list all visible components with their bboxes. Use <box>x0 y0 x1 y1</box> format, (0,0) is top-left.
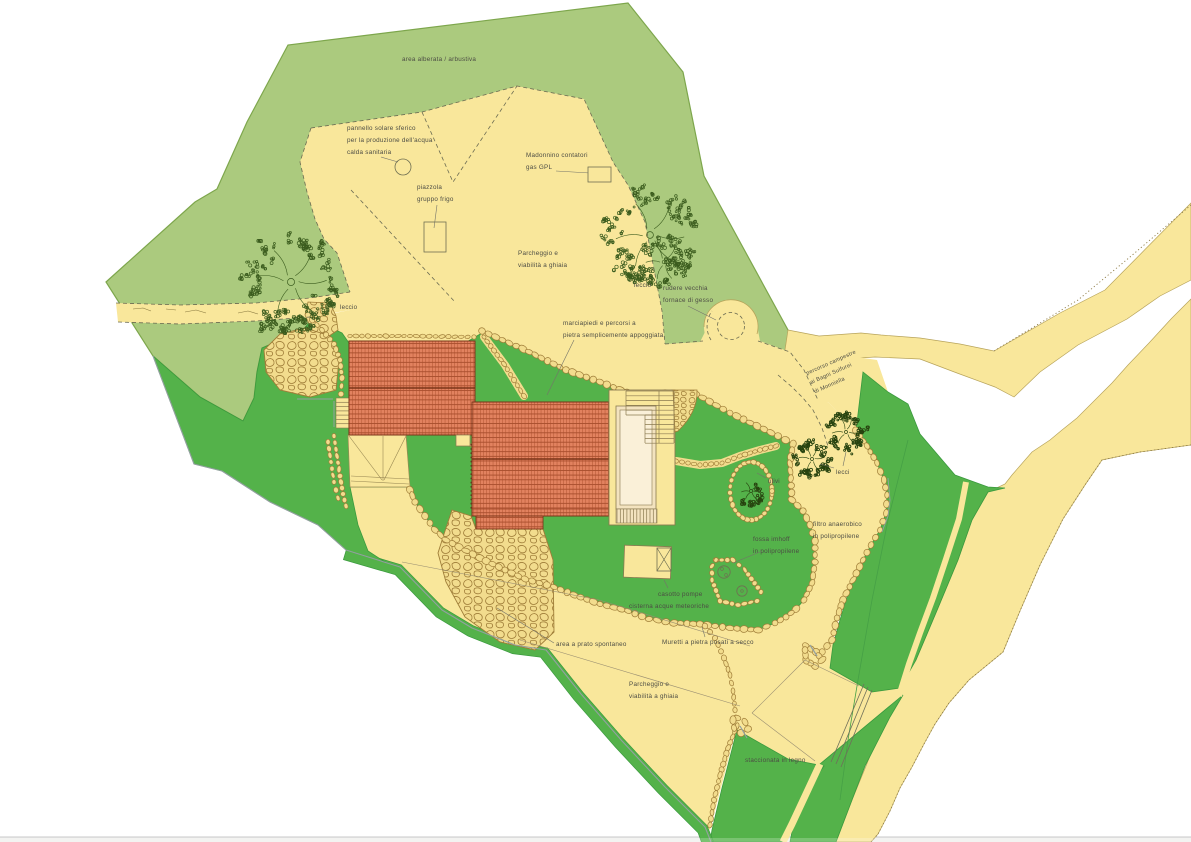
svg-text:gruppo frigo: gruppo frigo <box>417 196 454 203</box>
svg-text:Parcheggio e: Parcheggio e <box>518 250 558 257</box>
svg-text:viabilità a ghiaia: viabilità a ghiaia <box>518 262 568 269</box>
svg-text:staccionata in legno: staccionata in legno <box>745 757 806 764</box>
svg-text:calda sanitaria: calda sanitaria <box>347 149 392 156</box>
svg-text:fornace di gesso: fornace di gesso <box>663 297 713 304</box>
svg-text:pannello solare sferico: pannello solare sferico <box>347 125 416 132</box>
svg-text:leccio: leccio <box>340 304 358 311</box>
svg-text:lecci: lecci <box>836 469 850 476</box>
svg-text:cisterna acque meteoriche: cisterna acque meteoriche <box>629 603 709 610</box>
svg-text:ulivi: ulivi <box>768 478 780 485</box>
svg-text:pietra semplicemente appoggiat: pietra semplicemente appoggiata <box>563 332 664 339</box>
svg-text:piazzola: piazzola <box>417 184 442 191</box>
svg-text:area alberata / arbustiva: area alberata / arbustiva <box>402 56 476 63</box>
svg-text:gas GPL: gas GPL <box>526 164 552 171</box>
svg-text:per la produzione dell'acqua: per la produzione dell'acqua <box>347 137 433 144</box>
svg-text:viabilità a ghiaia: viabilità a ghiaia <box>629 693 679 700</box>
svg-text:in polipropilene: in polipropilene <box>813 533 860 540</box>
svg-text:fossa imhoff: fossa imhoff <box>753 536 790 543</box>
svg-text:casotto pompe: casotto pompe <box>658 591 703 598</box>
svg-text:area a prato spontaneo: area a prato spontaneo <box>556 641 627 648</box>
svg-text:filtro anaerobico: filtro anaerobico <box>813 521 862 528</box>
svg-text:in polipropilene: in polipropilene <box>753 548 800 555</box>
svg-text:Parcheggio e: Parcheggio e <box>629 681 669 688</box>
svg-text:marciapiedi e percorsi a: marciapiedi e percorsi a <box>563 320 636 327</box>
svg-text:rudere vecchia: rudere vecchia <box>663 285 708 292</box>
svg-text:Muretti a pietra posati a secc: Muretti a pietra posati a secco <box>662 639 754 646</box>
svg-text:Madonnino contatori: Madonnino contatori <box>526 152 588 159</box>
svg-text:leccio: leccio <box>634 282 652 289</box>
